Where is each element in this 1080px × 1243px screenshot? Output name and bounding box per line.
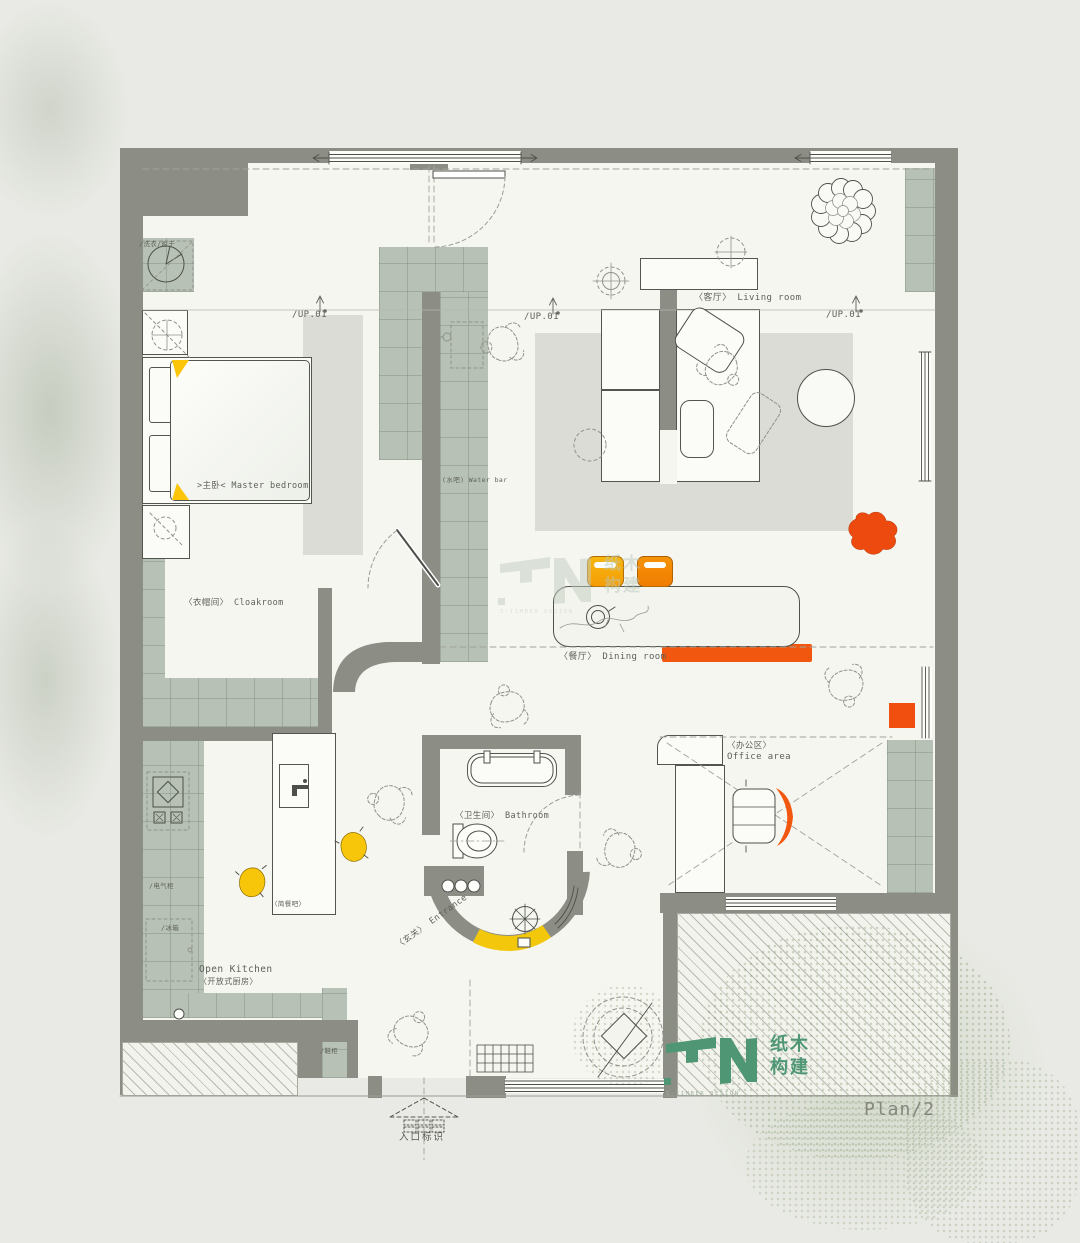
toy-blob [849, 512, 897, 554]
bar-stool-2 [230, 858, 271, 900]
label-fridge: /冰箱 [161, 925, 179, 932]
label-entry-marker: 入口标识 [399, 1133, 445, 1143]
label-open-kitchen-zh: 〈开放式厨房〉 [199, 978, 258, 986]
living-armchair [672, 305, 784, 457]
label-cloakroom: 〈衣帽间〉 Cloakroom [184, 599, 284, 608]
watermark-center-zh2: 构建 [604, 578, 642, 595]
label-up-3: /UP.01 [826, 311, 861, 320]
office-chair [733, 780, 793, 852]
bath-sink-bowls [442, 880, 480, 892]
watermark-center: 纸木 构建 S-TIMBER DESIGN [498, 550, 648, 620]
column-symbols [145, 236, 747, 545]
bar-stool-1 [335, 827, 368, 861]
water-bar-appliance [438, 322, 483, 368]
cloakroom-door [368, 530, 438, 588]
logo-caption: S-TIMBER DESIGN [666, 1092, 740, 1098]
logo-zh1: 纸木 [770, 1036, 810, 1054]
logo-bottom: 纸木 构建 S-TIMBER DESIGN [664, 1030, 814, 1102]
people-figures [364, 321, 870, 1059]
bar-faucet [292, 779, 308, 796]
stove-symbol [147, 772, 189, 830]
label-water-bar: (水吧) Water bar [442, 477, 508, 484]
entrance-tree [583, 997, 663, 1077]
label-up-1: /UP.01 [292, 311, 327, 320]
label-plan-number: Plan/2 [864, 1101, 935, 1119]
label-up-2: /UP.01 [524, 313, 559, 322]
label-electrical-cabinet: /电气柜 [149, 883, 174, 890]
watermark-center-zh1: 纸木 [604, 556, 642, 573]
tn-glyph-center [498, 557, 591, 605]
label-office-en: Office area [727, 753, 791, 762]
bed-corner-accents [172, 360, 189, 500]
tn-glyph-bottom [664, 1037, 757, 1085]
label-living-room: 〈客厅〉 Living room [694, 294, 801, 303]
label-office-zh: 〈办公区〉 [727, 742, 772, 751]
label-snack-bar: 〈简餐吧〉 [271, 901, 306, 908]
doormat [477, 1045, 533, 1072]
toilet [450, 824, 504, 858]
label-master-bedroom: >主卧< Master bedroom [197, 482, 309, 491]
label-shoe-cabinet: /鞋柜 [320, 1048, 338, 1055]
coffee-table [798, 370, 855, 427]
bathroom-door [524, 795, 581, 852]
label-dining-room: 〈餐厅〉 Dining room [559, 653, 666, 662]
entry-door [433, 171, 505, 247]
label-open-kitchen-en: Open Kitchen [199, 965, 272, 975]
watermark-center-caption: S-TIMBER DESIGN [500, 610, 574, 616]
label-bathroom: 〈卫生间〉 Bathroom [455, 812, 549, 821]
bathtub-detail [471, 751, 553, 783]
kitchen-knob [174, 1009, 184, 1019]
label-washer-dryer: /洗衣/晾干 [139, 241, 175, 248]
plan-linework [0, 0, 1080, 1243]
flower-pouf [812, 179, 876, 244]
floor-plan-sheet: 纸木 构建 S-TIMBER DESIGN 纸木 构建 S-TIMBER DES… [0, 0, 1080, 1243]
corridor-arc-wall [333, 642, 440, 692]
logo-zh2: 构建 [770, 1059, 810, 1077]
window-lines [120, 152, 958, 1096]
